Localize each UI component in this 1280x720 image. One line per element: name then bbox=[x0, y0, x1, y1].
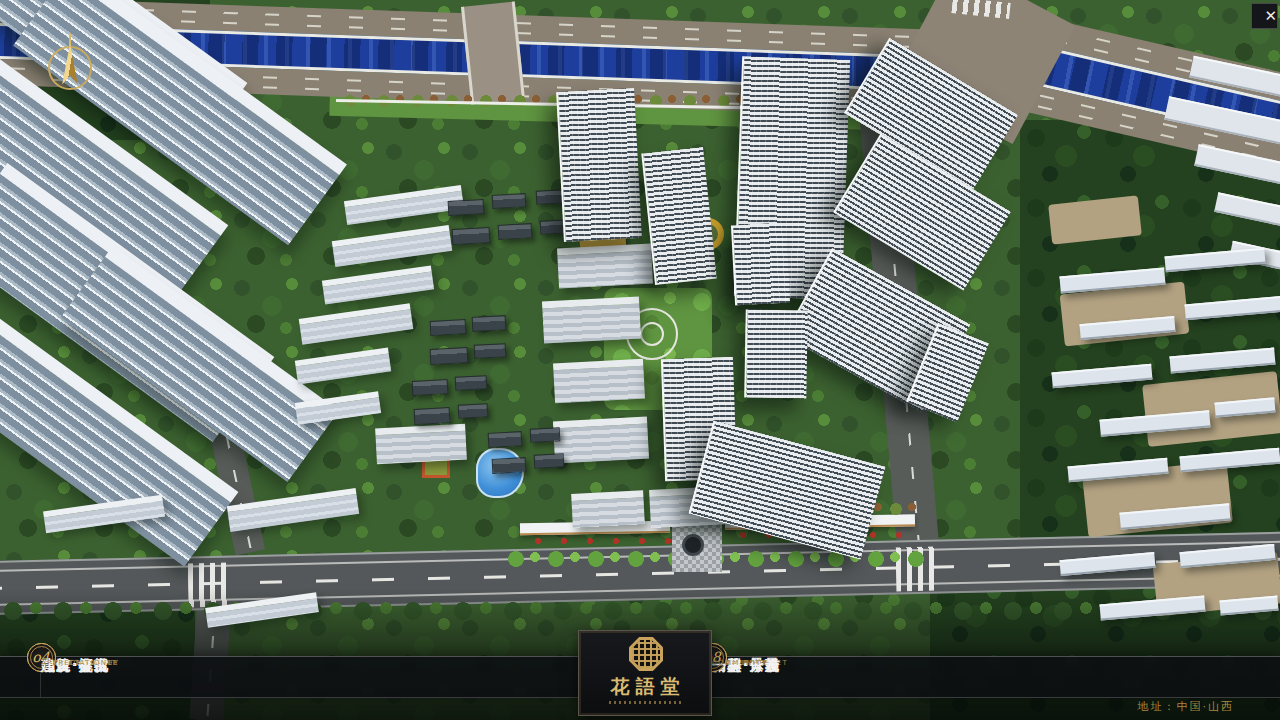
midrise-slab bbox=[553, 417, 649, 464]
midrise-slab bbox=[553, 359, 645, 404]
midrise-slab bbox=[542, 296, 641, 343]
existing-row-east bbox=[1189, 56, 1280, 107]
residential-row bbox=[322, 265, 434, 304]
highrise-tower bbox=[689, 421, 886, 560]
courtyard-home bbox=[430, 319, 467, 336]
building-layer bbox=[0, 0, 1280, 720]
menu-group-left: o1 品牌·介绍BRAND SUPPORT o2 区位·价值LOCATION V… bbox=[40, 657, 578, 697]
existing-row-east bbox=[1164, 96, 1280, 152]
courtyard-home bbox=[492, 193, 527, 209]
village-slab bbox=[1164, 248, 1265, 273]
residential-row bbox=[332, 225, 452, 267]
highrise-tower bbox=[641, 147, 716, 285]
residential-row bbox=[205, 592, 319, 627]
village-slab bbox=[1100, 595, 1206, 620]
close-icon: ✕ bbox=[1265, 4, 1278, 28]
courtyard-home bbox=[474, 343, 507, 359]
village-slab bbox=[1059, 552, 1155, 576]
project-logo[interactable]: 花語堂 bbox=[578, 630, 712, 716]
project-address: 地址：中国·山西 bbox=[1138, 699, 1235, 714]
compass-icon bbox=[42, 36, 100, 94]
menu-label-en: APPRECIATION bbox=[41, 659, 107, 667]
presentation-window: ✕ o1 品牌·介绍BRAND SUPPORT o2 区位·价值LOCATION… bbox=[0, 0, 1280, 720]
existing-row-east bbox=[1214, 192, 1280, 235]
midrise-slab bbox=[375, 424, 467, 465]
courtyard-home bbox=[458, 403, 489, 419]
residential-row bbox=[295, 348, 391, 385]
midrise-slab bbox=[571, 490, 645, 528]
courtyard-home bbox=[430, 347, 469, 365]
courtyard-home bbox=[534, 453, 565, 469]
courtyard-home bbox=[455, 375, 488, 391]
logo-subtitle-line bbox=[609, 701, 681, 704]
village-slab bbox=[1184, 296, 1280, 321]
project-name: 花語堂 bbox=[579, 674, 711, 700]
courtyard-home bbox=[414, 407, 451, 425]
residential-row bbox=[227, 488, 359, 532]
residential-row bbox=[344, 185, 464, 225]
residential-row bbox=[299, 303, 414, 344]
seal-emblem-icon bbox=[629, 637, 663, 671]
highrise-tower bbox=[556, 88, 642, 242]
ground-patch bbox=[1048, 195, 1142, 244]
courtyard-home bbox=[448, 199, 485, 216]
highrise-tower bbox=[731, 223, 790, 306]
courtyard-home bbox=[492, 457, 527, 474]
courtyard-home bbox=[472, 315, 507, 332]
courtyard-home bbox=[530, 427, 561, 443]
aerial-masterplan-view[interactable] bbox=[0, 0, 1280, 720]
courtyard-home bbox=[488, 431, 523, 448]
village-slab bbox=[1179, 448, 1280, 473]
existing-row-east bbox=[1194, 144, 1280, 194]
close-button[interactable]: ✕ bbox=[1251, 3, 1278, 29]
menu-label-en: COMMUNITY bbox=[712, 659, 767, 667]
courtyard-home bbox=[452, 227, 491, 245]
village-slab bbox=[1169, 347, 1275, 373]
courtyard-home bbox=[498, 223, 533, 240]
courtyard-home bbox=[412, 379, 449, 396]
highrise-tower bbox=[744, 309, 808, 398]
village-slab bbox=[1051, 364, 1152, 389]
midrise-slab bbox=[557, 244, 653, 289]
menu-group-right: o5 园林·景观GARDEN STREET o6 精装·体验EXPERIENCE… bbox=[712, 657, 1240, 697]
